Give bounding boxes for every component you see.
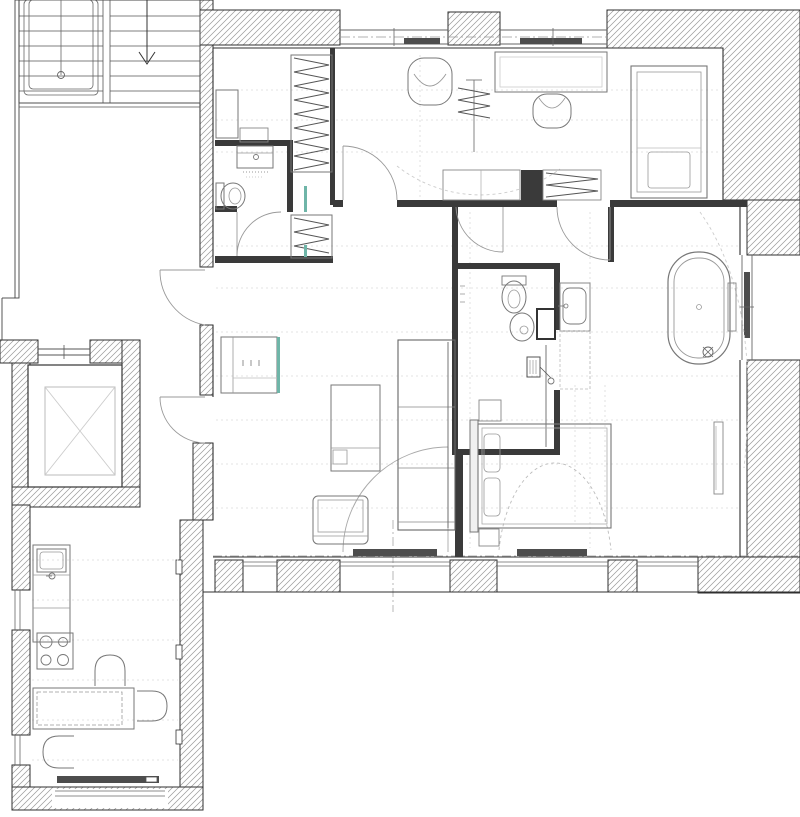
accent-teal-console	[277, 337, 280, 393]
bedroom2-wardrobe-hangers	[546, 173, 598, 197]
bath-shower-head	[527, 357, 540, 377]
bath-bidet-inner	[508, 290, 520, 308]
living-table-seat	[333, 450, 347, 464]
wall-right-upper	[747, 200, 800, 255]
bedroom2-bed-frame	[631, 66, 707, 198]
wall-top-right-corner	[607, 10, 800, 200]
bottom-window-2-radiator	[517, 549, 587, 556]
bedroom2-chair	[533, 94, 571, 128]
bedroom2-armchair-seat	[414, 74, 446, 86]
bedroom2-chair-seat	[539, 98, 565, 108]
partition-wc-right	[287, 140, 293, 212]
bathtub-outer	[668, 252, 730, 364]
door-corridor-1-swing	[160, 270, 205, 325]
window-shelf	[728, 283, 736, 331]
wall-bottom-right-corner	[698, 557, 800, 593]
bath-niche	[537, 309, 555, 339]
bedroom2-lowboard	[443, 170, 520, 200]
door-master-balcony-swing	[499, 463, 611, 550]
top-window-1-sill	[404, 38, 440, 44]
partition-living-master	[455, 455, 463, 557]
bedroom2-desk	[495, 52, 607, 92]
wc-sink	[237, 146, 273, 168]
wall-elevator-left	[12, 363, 30, 505]
kitchen-counter	[33, 545, 70, 642]
partition-wc-top	[215, 140, 293, 146]
kitchen-burner-4	[58, 655, 69, 666]
wall-corridor-lower	[193, 443, 213, 520]
wall-elevator-bottom	[12, 487, 140, 507]
door-master-swing	[557, 207, 610, 260]
bedroom2-bed-pillow	[648, 152, 690, 188]
wall-elevator-pier-left	[0, 340, 38, 363]
wall-bottom-pier-3	[277, 560, 340, 592]
dining-chair-right	[137, 691, 167, 721]
partition-bath-bottom	[452, 449, 560, 455]
partition-hall-bottom	[215, 256, 333, 263]
floor-plan-canvas	[0, 0, 800, 817]
top-window-2-sill	[520, 38, 582, 44]
master-bed-pillow-2	[484, 478, 500, 516]
vanity-counter-dashed	[560, 331, 590, 389]
partition-vestibule-right	[608, 207, 614, 262]
bedroom2-desk-inner	[500, 57, 602, 87]
living-sofa	[313, 496, 368, 544]
wall-right-lower	[747, 360, 800, 557]
master-nightstand-bottom	[479, 529, 499, 546]
wall-top-pier	[448, 12, 500, 45]
accent-teal-closet-lower	[304, 245, 307, 257]
door-bedroom2-swing	[343, 146, 397, 200]
closet-lower-hangers	[294, 218, 329, 253]
wall-bottom-pier-1	[608, 560, 637, 592]
wall-wing-right	[180, 520, 203, 787]
floor-plan-page	[0, 0, 800, 817]
master-bed-mattress	[482, 428, 607, 524]
stairwell-left-wall	[15, 0, 19, 298]
bedroom2-armchair	[408, 58, 452, 105]
living-cabinet	[398, 340, 455, 530]
wall-top-left	[200, 10, 340, 45]
kitchen-burner-3	[41, 655, 51, 665]
partition-hall-top-a	[333, 200, 343, 207]
curve-master-window	[700, 212, 748, 468]
dining-chair-left	[43, 736, 74, 768]
bath-shower-mixer	[548, 378, 554, 384]
master-bed-frame	[478, 424, 611, 528]
vanity-faucet	[564, 304, 568, 308]
bathtub-drain	[697, 305, 702, 310]
wc-cabinet-column	[216, 90, 238, 138]
master-mirror	[714, 422, 723, 494]
hall-console	[221, 337, 277, 393]
master-bed-headboard	[470, 420, 478, 532]
bathtub-inner	[674, 258, 724, 358]
closet-upper-hangers	[294, 58, 329, 170]
dining-table	[33, 688, 134, 729]
wc-sink-faucet	[254, 155, 259, 160]
wc-shelf	[240, 128, 268, 142]
right-window-sill	[744, 272, 750, 338]
wall-elevator-right	[122, 340, 140, 487]
bottom-window-1-radiator	[353, 549, 437, 556]
door-entry-swing	[160, 397, 205, 443]
stair-outline	[19, 0, 200, 103]
kitchen-sink-basin	[40, 552, 63, 569]
partition-bath-right-lower	[554, 390, 560, 455]
door-bathroom-swing	[456, 207, 503, 252]
wing-window-box	[146, 777, 157, 782]
bath-toilet-inner	[520, 326, 528, 334]
partition-hall-top-c	[610, 200, 747, 207]
wall-wing-left-b	[12, 630, 30, 735]
dining-table-inner	[37, 692, 122, 725]
wing-wall-notch-1	[176, 560, 182, 574]
accent-teal-closet-upper	[304, 186, 307, 212]
wall-corridor-mid	[200, 325, 213, 395]
wing-wall-notch-2	[176, 645, 182, 659]
elevator-cab-outer	[28, 365, 122, 487]
wc-toilet-bowl-inner	[229, 188, 241, 204]
partition-bath-top	[452, 263, 560, 269]
bedroom2-dresser-dark	[521, 170, 543, 200]
partition-hall-top-b	[397, 200, 557, 207]
wall-bottom-pier-4	[215, 560, 243, 592]
wing-wall-notch-3	[176, 730, 182, 744]
wing-bottom-window-gap	[52, 789, 168, 808]
wing-window-radiator	[57, 776, 159, 783]
vanity-basin	[563, 288, 586, 324]
wc-toilet-tank	[216, 183, 224, 209]
door-wc-swing	[237, 212, 281, 256]
wall-bottom-pier-2	[450, 560, 497, 592]
living-sofa-cushion	[318, 500, 363, 532]
dining-chair-top	[95, 655, 125, 686]
living-table	[331, 385, 380, 471]
wall-wing-left-a	[12, 505, 30, 590]
master-nightstand-top	[479, 400, 501, 421]
